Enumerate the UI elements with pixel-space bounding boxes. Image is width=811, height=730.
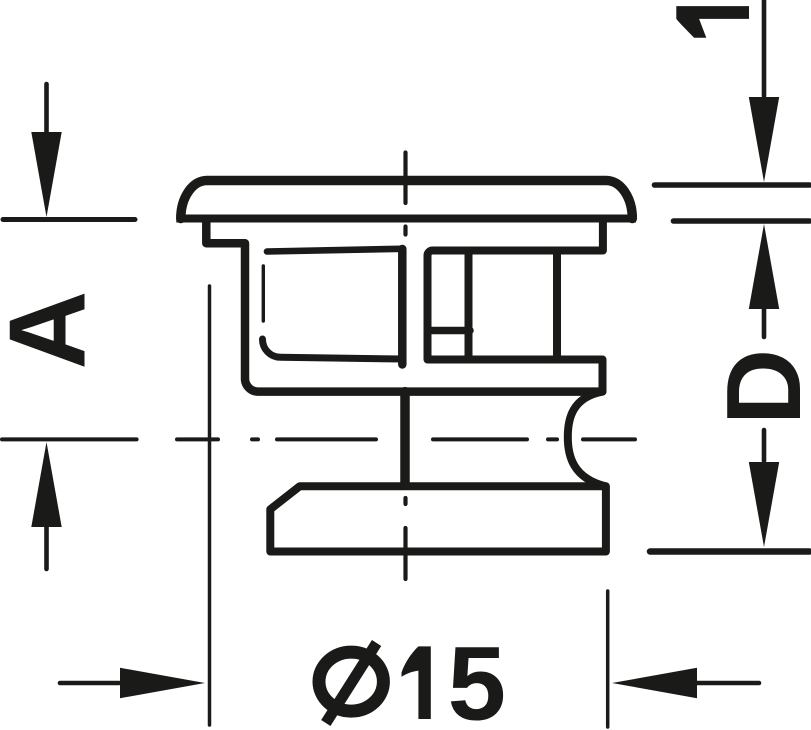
svg-text:A: A [0, 291, 109, 370]
svg-text:5: 5 [448, 626, 506, 730]
svg-text:D: D [705, 349, 811, 425]
